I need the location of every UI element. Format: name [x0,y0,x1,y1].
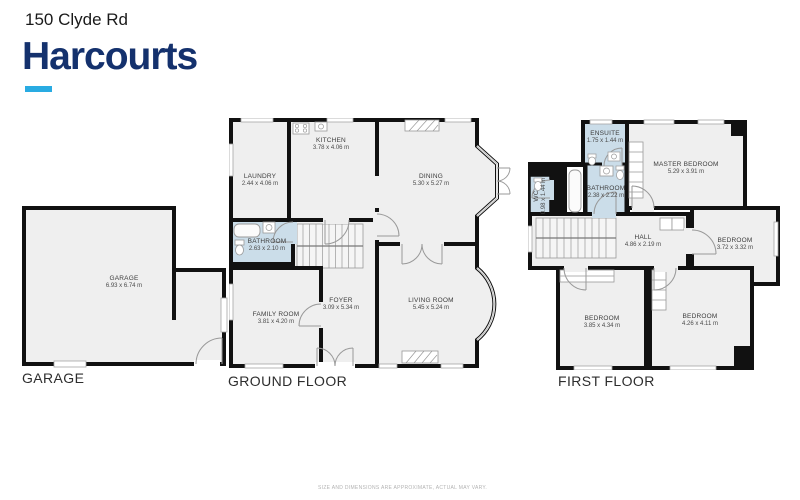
garage-floorplan: GARAGE 6.93 x 6.74 m [22,206,228,368]
ground-openings [375,176,383,208]
garage-walls [24,208,224,364]
first-floorplan-drawing [528,118,780,370]
toilet-icon [616,166,624,180]
caption-garage: GARAGE [22,370,84,386]
staircase [536,218,616,258]
staircase [297,224,363,268]
bathtub-icon [234,224,260,237]
kitchen-sink-icon [315,122,327,131]
ground-floorplan-drawing [229,118,513,372]
stove-icon [293,123,309,134]
harcourts-logo: Harcourts [22,34,197,81]
ground-floorplan: LAUNDRY 2.44 x 4.06 m KITCHEN 3.78 x 4.0… [229,118,513,372]
caption-ground-floor: GROUND FLOOR [228,373,347,389]
logo-underline [25,86,52,92]
caption-first-floor: FIRST FLOOR [558,373,655,389]
ensuite-toilet-icon [588,154,596,165]
garage-floorplan-drawing [22,206,228,368]
wc-toilet-icon [534,178,542,191]
toilet-icon [235,240,244,255]
ground-rooms [229,120,497,366]
first-floorplan: ENSUITE 1.75 x 1.44 m MASTER BEDROOM 5.2… [528,118,780,370]
ensuite-sink-icon [608,152,620,161]
bathroom-sink-icon [263,222,275,233]
disclaimer-text: SIZE AND DIMENSIONS ARE APPROXIMATE, ACT… [318,485,487,491]
bathroom-sink-icon [600,166,613,176]
logo-text: Harcourts [22,34,197,81]
floorplan-page: 150 Clyde Rd Harcourts GARAGE 6.93 x 6.7… [0,0,800,500]
bathtub-icon [569,170,581,212]
address-title: 150 Clyde Rd [25,10,128,30]
